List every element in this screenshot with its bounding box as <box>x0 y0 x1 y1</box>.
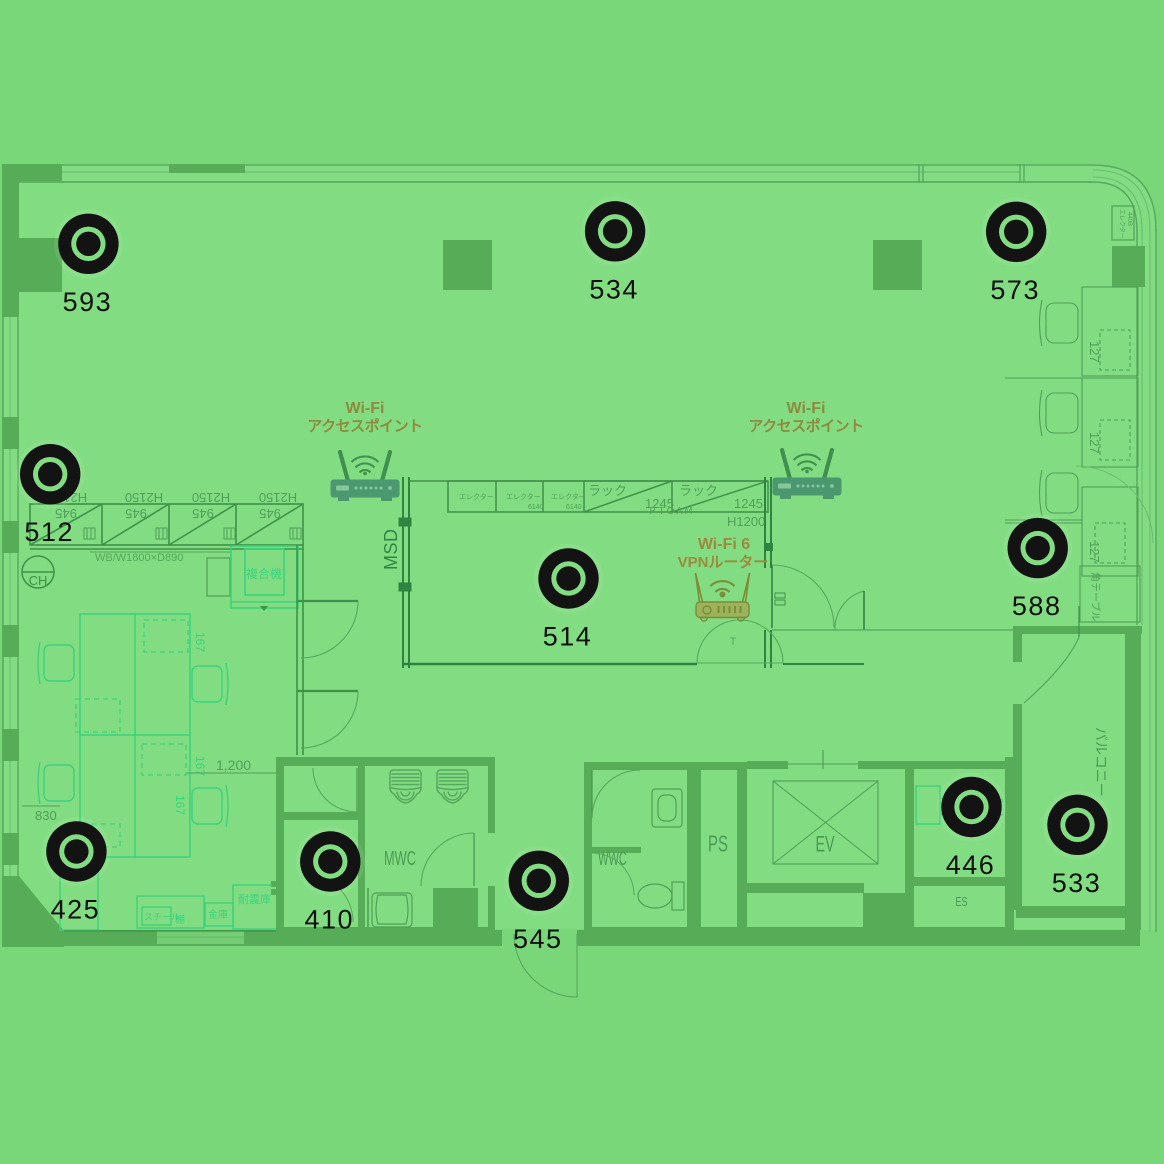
svg-text:バルコニー: バルコニー <box>1093 727 1109 797</box>
svg-text:エレクター: エレクター <box>459 492 494 501</box>
svg-text:945: 945 <box>125 506 147 521</box>
svg-text:514: 514 <box>543 622 593 652</box>
svg-text:573: 573 <box>990 275 1040 305</box>
svg-text:CH: CH <box>29 573 48 588</box>
svg-text:446: 446 <box>946 850 996 880</box>
svg-text:アクセスポイント: アクセスポイント <box>307 417 422 435</box>
svg-text:6140: 6140 <box>528 504 544 511</box>
svg-text:593: 593 <box>63 287 113 317</box>
svg-text:127: 127 <box>1087 432 1102 454</box>
svg-text:1,200: 1,200 <box>216 757 251 773</box>
svg-text:440B: 440B <box>1126 212 1132 226</box>
svg-text:H2150: H2150 <box>259 490 297 505</box>
svg-text:ラック: ラック <box>679 483 718 498</box>
svg-text:MSD: MSD <box>381 529 401 571</box>
svg-text:167: 167 <box>173 795 187 815</box>
svg-text:MWC: MWC <box>384 847 416 870</box>
svg-text:410: 410 <box>305 905 355 935</box>
svg-text:534: 534 <box>589 274 639 304</box>
svg-text:Wi-Fi: Wi-Fi <box>787 400 826 417</box>
svg-text:EV: EV <box>815 831 835 856</box>
svg-text:830: 830 <box>35 808 57 823</box>
svg-text:6140: 6140 <box>566 504 582 511</box>
svg-text:Wi-Fi 6: Wi-Fi 6 <box>698 536 750 553</box>
svg-text:ＰＴＯＡＭ: ＰＴＯＡＭ <box>648 506 693 516</box>
svg-text:H2150: H2150 <box>192 490 230 505</box>
svg-text:エレクター: エレクター <box>506 492 541 501</box>
svg-text:533: 533 <box>1052 868 1102 898</box>
svg-text:アクセスポイント: アクセスポイント <box>748 417 863 435</box>
svg-text:角テーブル: 角テーブル <box>1089 572 1102 621</box>
svg-text:512: 512 <box>24 517 74 547</box>
svg-text:425: 425 <box>51 895 101 925</box>
svg-text:WB/W1800×D890: WB/W1800×D890 <box>95 552 183 564</box>
svg-text:棚: 棚 <box>175 913 185 926</box>
svg-text:PS: PS <box>708 831 728 857</box>
svg-text:127: 127 <box>1087 541 1102 563</box>
svg-text:167: 167 <box>193 632 207 652</box>
svg-text:945: 945 <box>259 506 281 521</box>
svg-text:T: T <box>730 636 737 648</box>
svg-text:複合機: 複合機 <box>246 566 282 581</box>
svg-text:1245: 1245 <box>734 496 763 511</box>
svg-text:Wi-Fi: Wi-Fi <box>346 400 385 417</box>
svg-text:金庫: 金庫 <box>208 908 228 921</box>
svg-text:ラック: ラック <box>588 483 627 498</box>
svg-text:H2150: H2150 <box>125 490 163 505</box>
svg-text:588: 588 <box>1012 591 1062 621</box>
svg-text:エレクター: エレクター <box>551 492 586 501</box>
svg-text:エレクター: エレクター <box>1118 209 1126 239</box>
svg-text:H1200: H1200 <box>727 514 765 529</box>
svg-text:VPNルーター: VPNルーター <box>678 554 769 571</box>
svg-text:545: 545 <box>513 924 563 954</box>
svg-text:945: 945 <box>192 506 214 521</box>
svg-text:ES: ES <box>955 896 967 910</box>
svg-text:耐震庫: 耐震庫 <box>238 892 271 906</box>
svg-text:127: 127 <box>1087 341 1102 363</box>
